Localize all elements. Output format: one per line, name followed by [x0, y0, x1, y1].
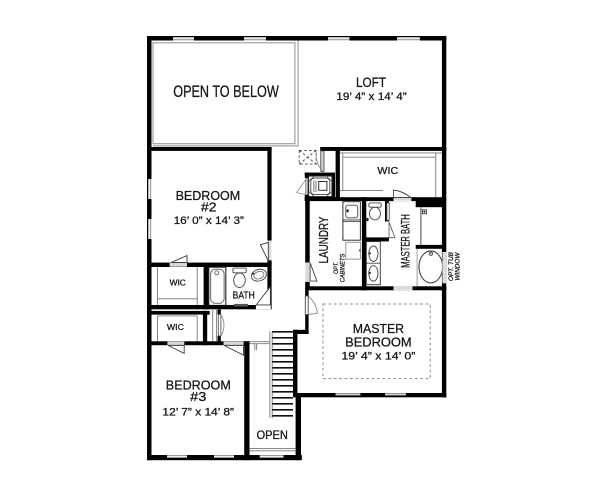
svg-text:LAUNDRY: LAUNDRY — [317, 216, 331, 264]
svg-text:WINDOW: WINDOW — [455, 252, 462, 281]
svg-text:WIC: WIC — [170, 278, 186, 287]
svg-text:BEDROOM: BEDROOM — [345, 334, 412, 349]
svg-text:19’ 4” x 14’ 0”: 19’ 4” x 14’ 0” — [341, 351, 415, 363]
svg-text:16’ 0” x 14’ 3”: 16’ 0” x 14’ 3” — [174, 215, 245, 227]
svg-text:WIC: WIC — [377, 166, 398, 177]
svg-text:12’ 7” x 14’ 8”: 12’ 7” x 14’ 8” — [162, 407, 234, 419]
svg-text:WIC: WIC — [167, 323, 184, 332]
svg-text:BATH: BATH — [233, 290, 255, 301]
svg-text:OPEN TO BELOW: OPEN TO BELOW — [173, 83, 279, 101]
svg-text:#3: #3 — [190, 389, 206, 404]
svg-text:OPEN: OPEN — [256, 428, 288, 442]
svg-text:LOFT: LOFT — [356, 74, 386, 90]
svg-text:#2: #2 — [201, 200, 217, 215]
svg-text:19’ 4” x 14’ 4”: 19’ 4” x 14’ 4” — [336, 91, 407, 103]
svg-text:CABINETS: CABINETS — [340, 253, 347, 282]
svg-text:MASTER BATH: MASTER BATH — [398, 214, 412, 268]
